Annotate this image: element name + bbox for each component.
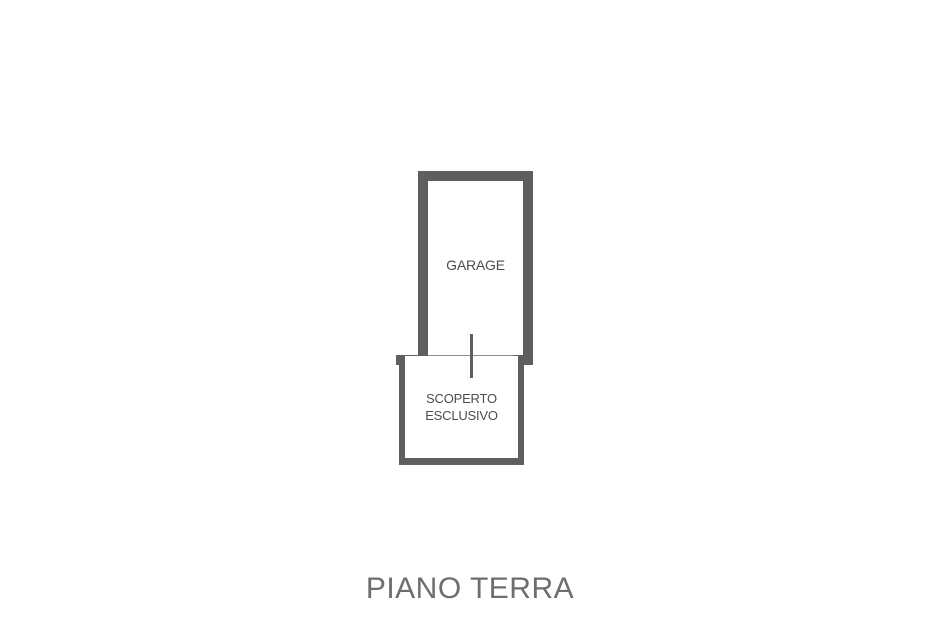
scoperto-label-line1: SCOPERTO xyxy=(399,390,524,407)
scoperto-label-line2: ESCLUSIVO xyxy=(399,407,524,424)
door-swing-line xyxy=(470,334,473,378)
floor-title: PIANO TERRA xyxy=(0,572,940,606)
scoperto-room-label: SCOPERTO ESCLUSIVO xyxy=(399,390,524,424)
garage-room-label: GARAGE xyxy=(418,257,533,273)
floorplan-canvas: GARAGE SCOPERTO ESCLUSIVO PIANO TERRA xyxy=(0,0,940,626)
